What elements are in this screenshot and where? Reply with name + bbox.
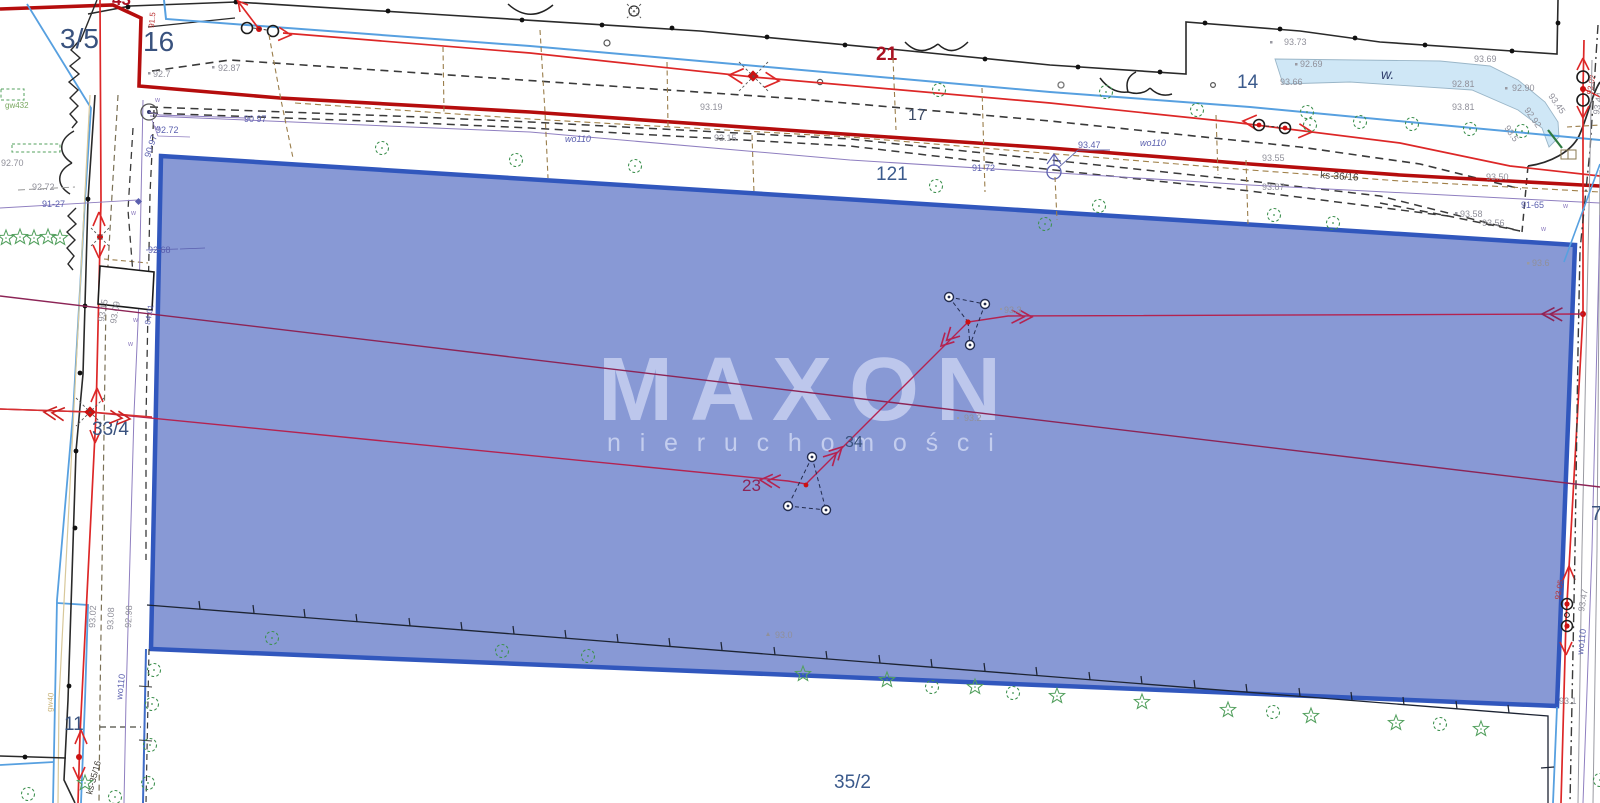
- svg-text:14: 14: [1237, 72, 1259, 93]
- svg-text:93.55: 93.55: [1262, 153, 1285, 163]
- svg-text:93.73: 93.73: [1284, 37, 1307, 47]
- svg-text:43: 43: [112, 0, 131, 9]
- svg-text:11: 11: [64, 714, 84, 735]
- svg-text:w: w: [132, 317, 139, 324]
- svg-text:MAXON: MAXON: [598, 340, 1018, 440]
- svg-text:21: 21: [876, 44, 898, 65]
- svg-text:93.19: 93.19: [700, 102, 723, 112]
- svg-text:93.1: 93.1: [1559, 696, 1577, 706]
- svg-text:92.98: 92.98: [123, 605, 134, 628]
- svg-text:92.72: 92.72: [156, 125, 179, 135]
- svg-text:7: 7: [1591, 503, 1600, 525]
- svg-text:23: 23: [742, 476, 761, 495]
- svg-text:90 97: 90 97: [244, 114, 267, 124]
- svg-text:92.7: 92.7: [153, 69, 171, 79]
- svg-text:93.50: 93.50: [1486, 172, 1509, 182]
- svg-text:93.0: 93.0: [775, 630, 793, 640]
- svg-text:16: 16: [143, 26, 174, 57]
- svg-text:92.72: 92.72: [32, 182, 55, 192]
- svg-text:93.58: 93.58: [1460, 209, 1483, 219]
- svg-text:gw40: gw40: [45, 692, 56, 712]
- svg-text:35/2: 35/2: [834, 772, 871, 793]
- svg-text:93.81: 93.81: [1452, 102, 1475, 112]
- svg-text:92.81: 92.81: [1452, 79, 1475, 89]
- svg-text:w: w: [1540, 226, 1547, 233]
- svg-text:93.87: 93.87: [1262, 182, 1285, 192]
- svg-text:93.66: 93.66: [1280, 77, 1303, 87]
- svg-text:3/5: 3/5: [60, 23, 99, 54]
- svg-text:w: w: [127, 341, 134, 348]
- svg-text:93.08: 93.08: [105, 607, 116, 630]
- svg-text:w: w: [154, 97, 161, 104]
- svg-text:wo110: wo110: [565, 134, 591, 144]
- svg-text:w: w: [1562, 203, 1569, 210]
- svg-text:93.15: 93.15: [714, 133, 737, 143]
- svg-text:93.2: 93.2: [964, 413, 982, 423]
- svg-text:92.87: 92.87: [218, 63, 241, 73]
- svg-text:34: 34: [845, 434, 863, 451]
- svg-text:93.69: 93.69: [1474, 54, 1497, 64]
- svg-text:91-65: 91-65: [1521, 200, 1544, 210]
- svg-text:91-72: 91-72: [972, 163, 995, 173]
- svg-text:121: 121: [876, 164, 908, 185]
- svg-text:17: 17: [908, 107, 926, 124]
- svg-text:w.: w.: [1381, 66, 1394, 82]
- svg-text:91-27: 91-27: [42, 199, 65, 209]
- svg-text:93.3: 93.3: [1004, 305, 1022, 315]
- svg-text:91.5: 91.5: [147, 11, 157, 28]
- svg-text:92.70: 92.70: [1, 158, 24, 168]
- svg-text:93.47: 93.47: [1078, 140, 1101, 150]
- svg-text:92.69: 92.69: [1300, 59, 1323, 69]
- svg-text:gw432: gw432: [5, 101, 29, 110]
- svg-text:92.90: 92.90: [1512, 83, 1535, 93]
- svg-text:93.6: 93.6: [1532, 258, 1550, 268]
- svg-text:w: w: [130, 210, 137, 217]
- svg-text:wo110: wo110: [1140, 138, 1166, 148]
- svg-text:93.02: 93.02: [87, 605, 98, 628]
